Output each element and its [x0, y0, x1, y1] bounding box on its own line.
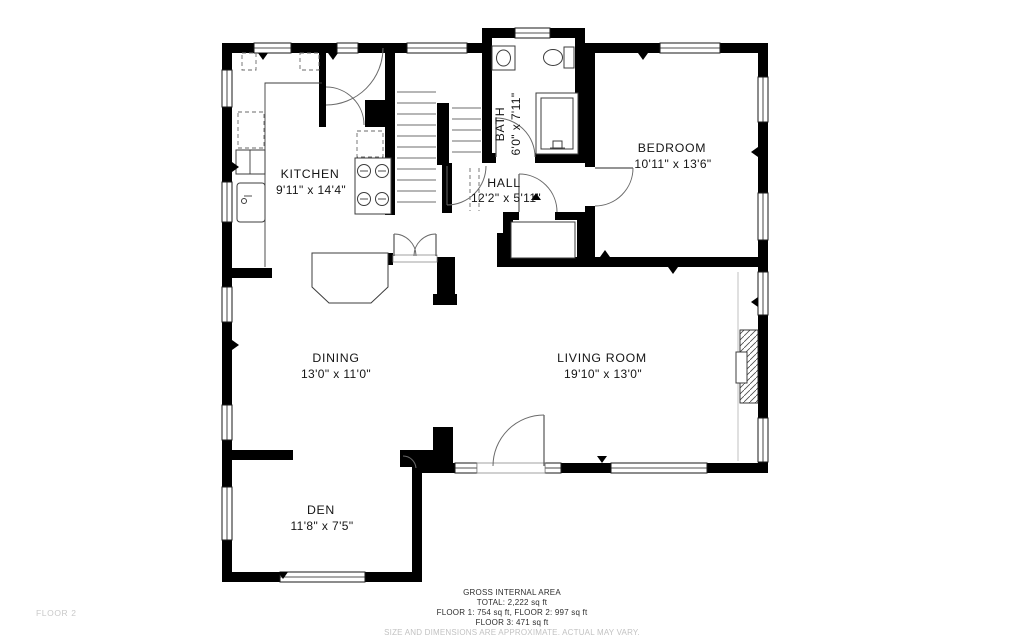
room-label-bath: BATH [493, 107, 507, 142]
area-summary: GROSS INTERNAL AREA TOTAL: 2,222 sq ft F… [0, 588, 1024, 638]
room-dims-bedroom: 10'11" x 13'6" [634, 157, 711, 171]
room-dims-kitchen: 9'11" x 14'4" [276, 183, 346, 197]
shower [536, 93, 578, 154]
floor-plan-drawing: KITCHEN 9'11" x 14'4" BATH 6'0" x 7'11" … [0, 0, 1024, 640]
hall-closet-interior [511, 222, 575, 258]
bath-sink [492, 46, 515, 70]
room-dims-hall: 12'2" x 5'11" [471, 191, 541, 205]
area-summary-title: GROSS INTERNAL AREA [0, 588, 1024, 598]
room-label-den: DEN [307, 503, 335, 517]
stove [355, 158, 391, 214]
room-label-kitchen: KITCHEN [281, 167, 340, 181]
sink [237, 183, 265, 222]
area-summary-total: TOTAL: 2,222 sq ft [0, 598, 1024, 608]
room-dims-bath: 6'0" x 7'11" [509, 92, 523, 155]
room-label-living-room: LIVING ROOM [557, 351, 647, 365]
toilet [544, 47, 575, 68]
floor-plan-page: KITCHEN 9'11" x 14'4" BATH 6'0" x 7'11" … [0, 0, 1024, 640]
room-dims-dining: 13'0" x 11'0" [301, 367, 371, 381]
area-summary-disclaimer: SIZE AND DIMENSIONS ARE APPROXIMATE. ACT… [0, 628, 1024, 638]
room-dims-living-room: 19'10" x 13'0" [564, 367, 642, 381]
area-summary-floor3: FLOOR 3: 471 sq ft [0, 618, 1024, 628]
room-label-dining: DINING [312, 351, 359, 365]
cabinet [236, 150, 265, 174]
room-label-hall: HALL [487, 176, 521, 190]
room-label-bedroom: BEDROOM [638, 141, 706, 155]
area-summary-floors: FLOOR 1: 754 sq ft, FLOOR 2: 997 sq ft [0, 608, 1024, 618]
kitchen-island [312, 253, 388, 303]
room-dims-den: 11'8" x 7'5" [290, 519, 353, 533]
